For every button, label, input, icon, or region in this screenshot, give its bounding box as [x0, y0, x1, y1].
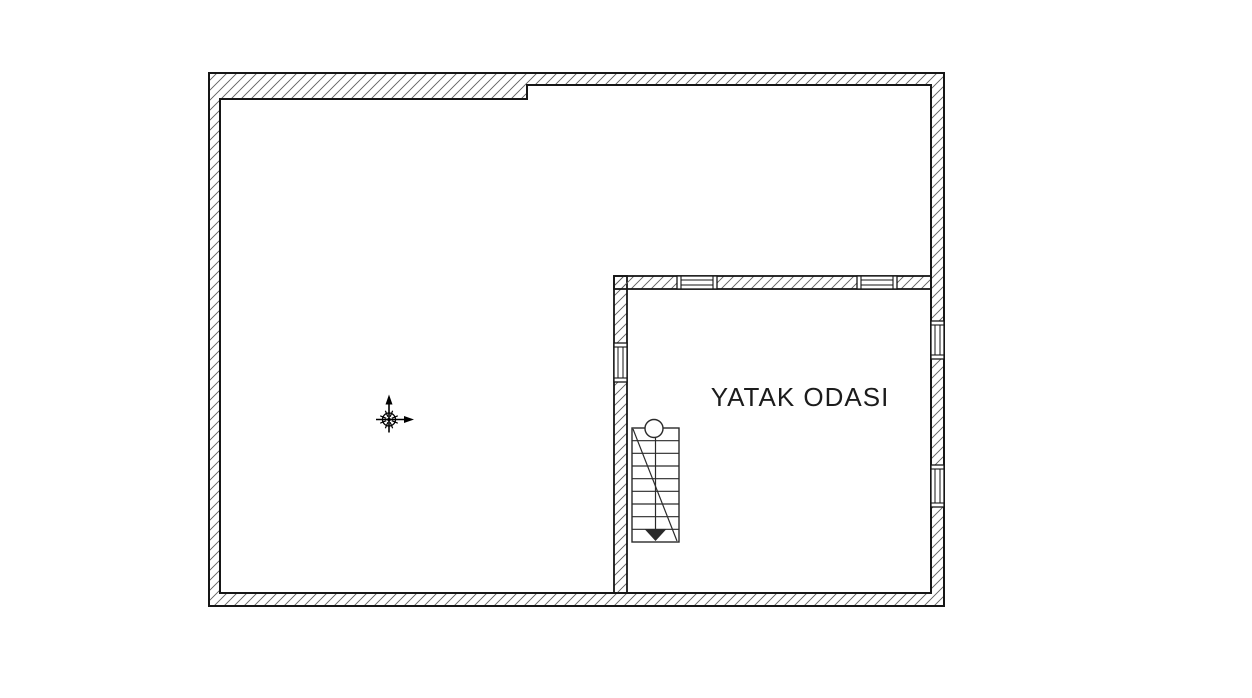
bedroom-left-wall: [614, 276, 627, 593]
origin-starburst-icon: [380, 411, 398, 429]
bedroom-left-window: [614, 343, 627, 382]
bedroom-top-window-2: [857, 276, 897, 289]
cad-drawing-area: YATAK ODASI: [0, 0, 1252, 698]
staircase: [632, 420, 679, 543]
room-label: YATAK ODASI: [711, 382, 890, 412]
right-wall-window-upper: [931, 321, 944, 359]
outer-walls: [209, 73, 944, 606]
stair-start-circle: [645, 420, 663, 438]
floor-plan: YATAK ODASI: [0, 0, 1252, 698]
right-wall-window-lower: [931, 465, 944, 507]
stair-direction-arrow: [645, 529, 667, 541]
x-axis-arrow: [404, 416, 414, 423]
y-axis-arrow: [386, 395, 393, 405]
bedroom-top-window-1: [677, 276, 717, 289]
ucs-origin-icon: [376, 395, 414, 433]
